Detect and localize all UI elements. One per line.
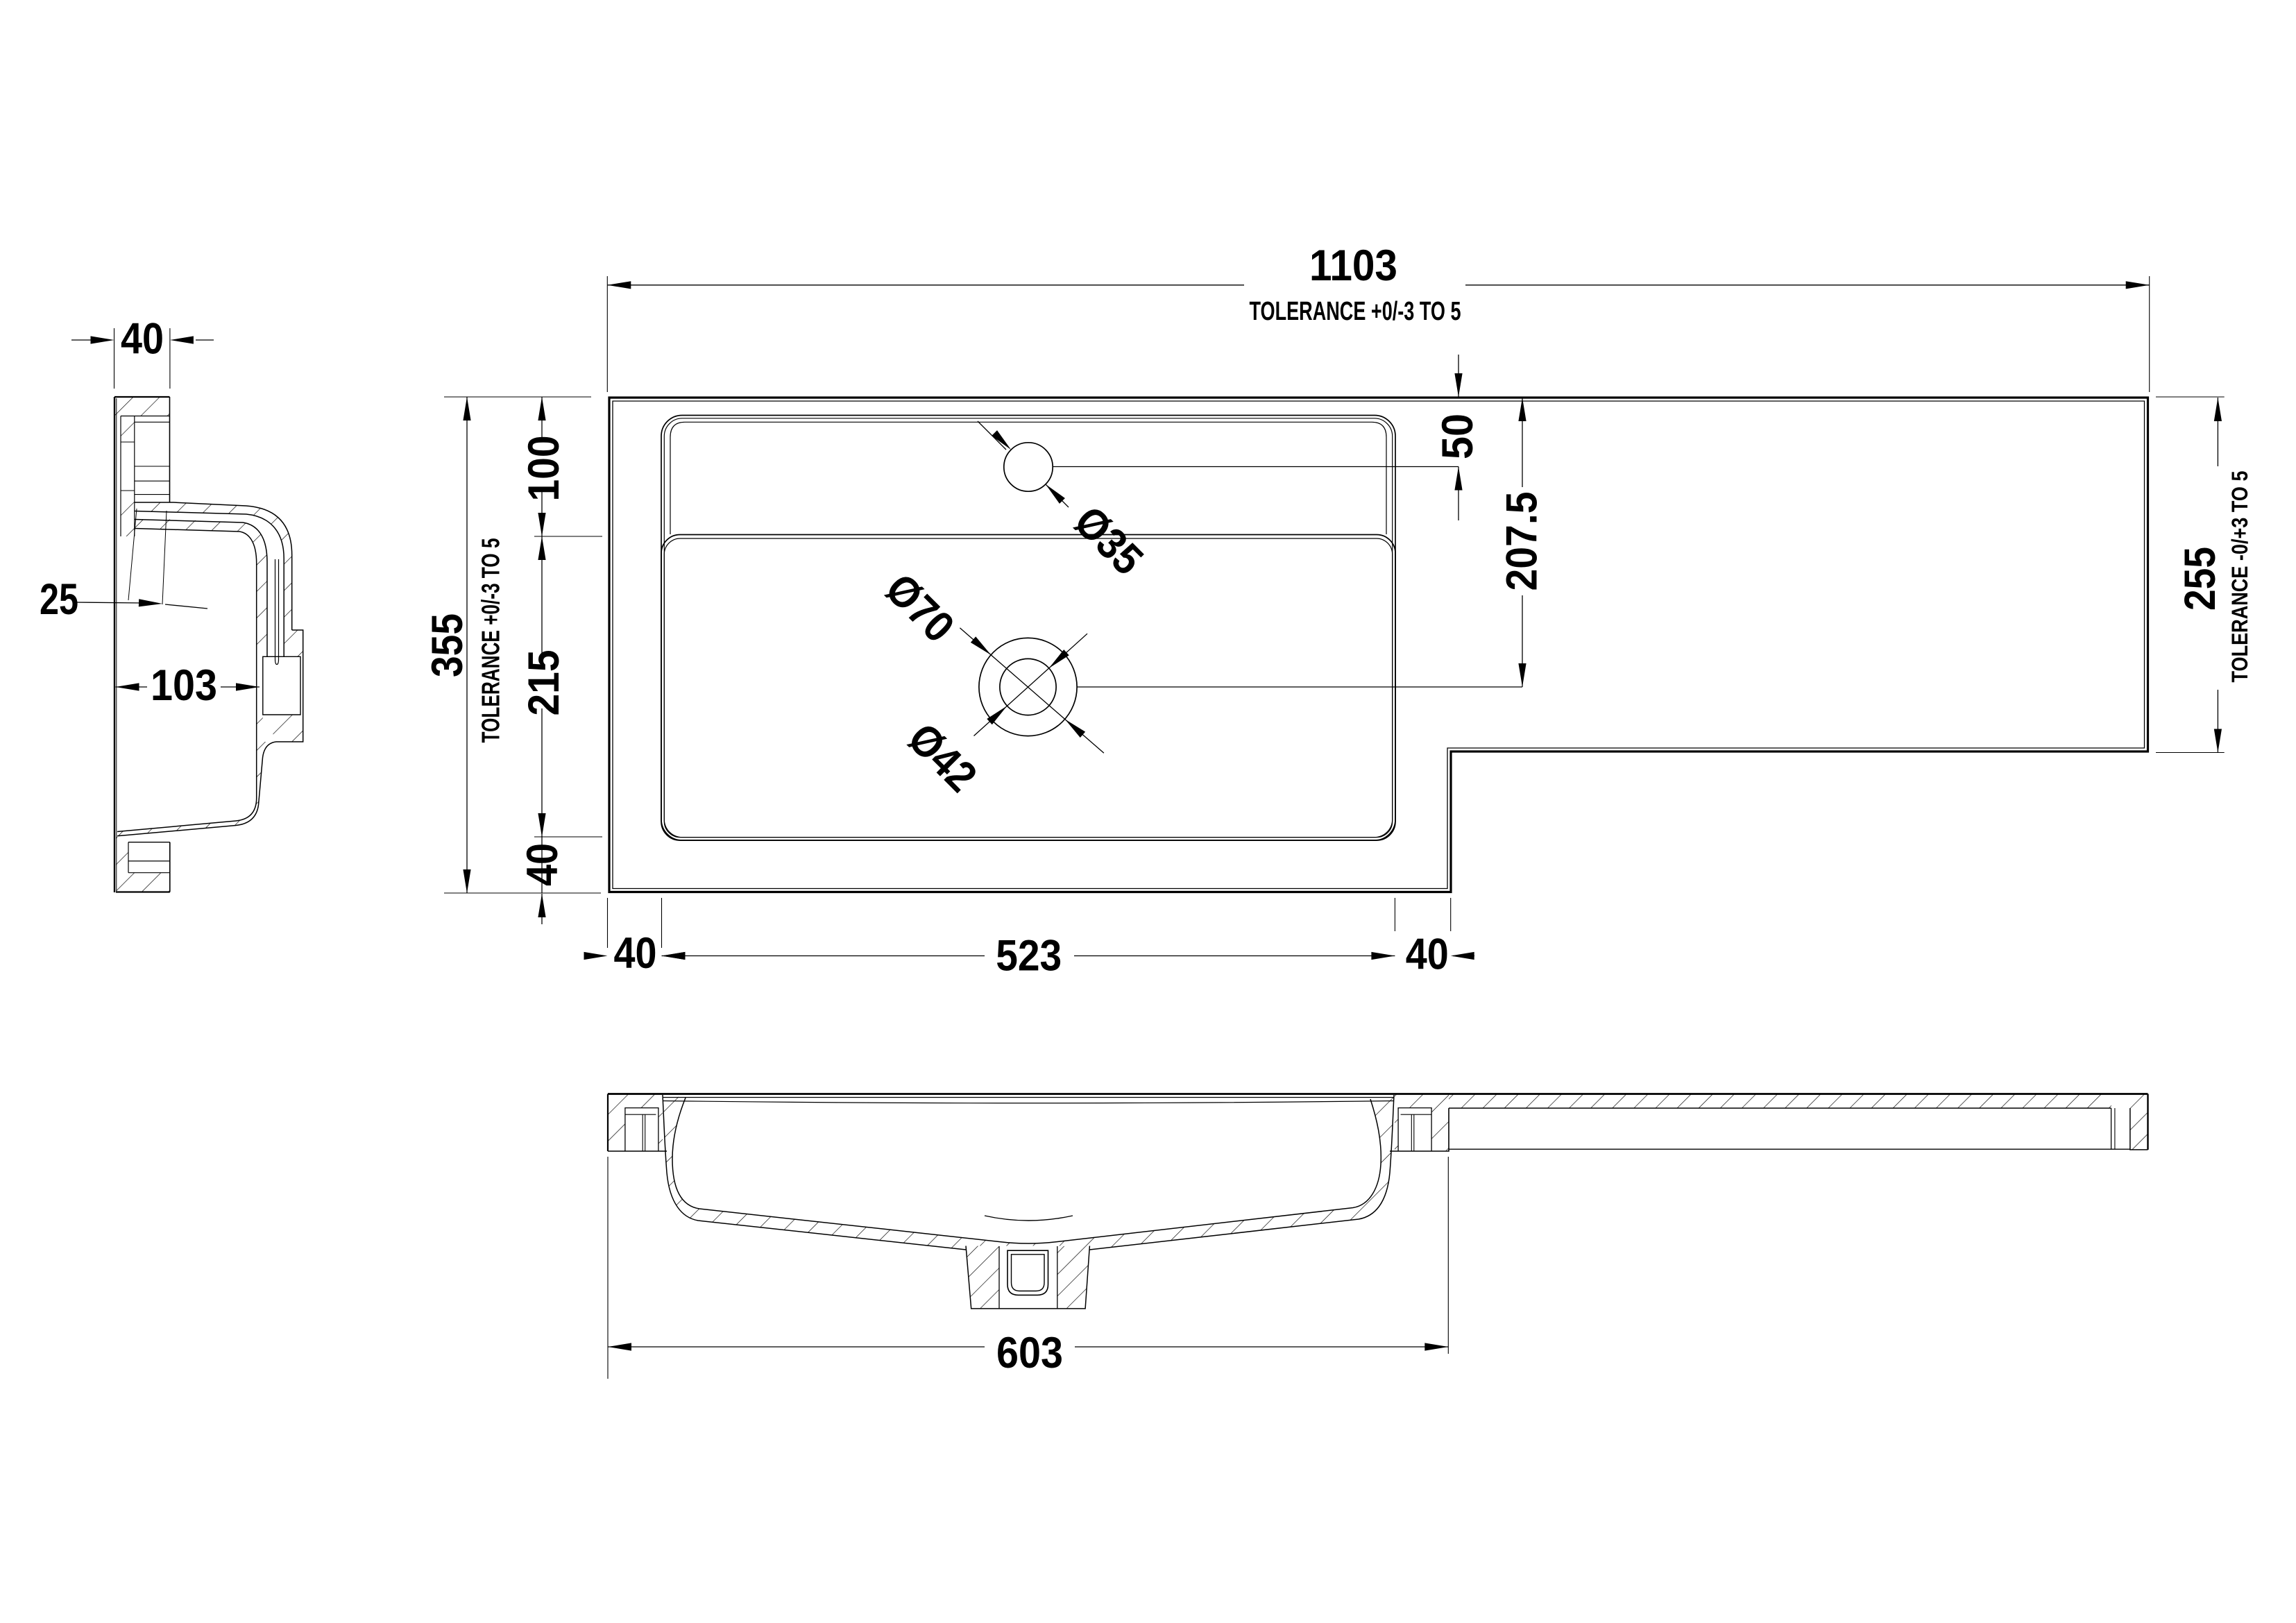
svg-text:603: 603 <box>996 1329 1063 1377</box>
svg-text:355: 355 <box>423 613 472 677</box>
svg-text:Ø42: Ø42 <box>899 714 986 801</box>
svg-text:25: 25 <box>40 575 78 624</box>
svg-text:Ø35: Ø35 <box>1065 497 1153 584</box>
svg-text:TOLERANCE -0/+3 TO 5: TOLERANCE -0/+3 TO 5 <box>2227 471 2252 683</box>
svg-text:100: 100 <box>520 436 568 502</box>
svg-text:40: 40 <box>1406 931 1449 979</box>
svg-text:40: 40 <box>614 929 657 978</box>
svg-text:1103: 1103 <box>1309 241 1397 290</box>
svg-text:523: 523 <box>996 932 1062 980</box>
svg-text:255: 255 <box>2176 547 2225 611</box>
svg-text:TOLERANCE +0/-3 TO 5: TOLERANCE +0/-3 TO 5 <box>1250 297 1461 326</box>
svg-text:103: 103 <box>151 661 217 710</box>
svg-text:Ø70: Ø70 <box>876 564 964 652</box>
svg-text:40: 40 <box>518 843 567 886</box>
svg-text:40: 40 <box>121 315 164 364</box>
svg-text:TOLERANCE +0/-3 TO 5: TOLERANCE +0/-3 TO 5 <box>477 538 505 743</box>
svg-text:50: 50 <box>1434 414 1482 459</box>
svg-text:207.5: 207.5 <box>1498 492 1547 591</box>
svg-text:215: 215 <box>520 650 568 716</box>
